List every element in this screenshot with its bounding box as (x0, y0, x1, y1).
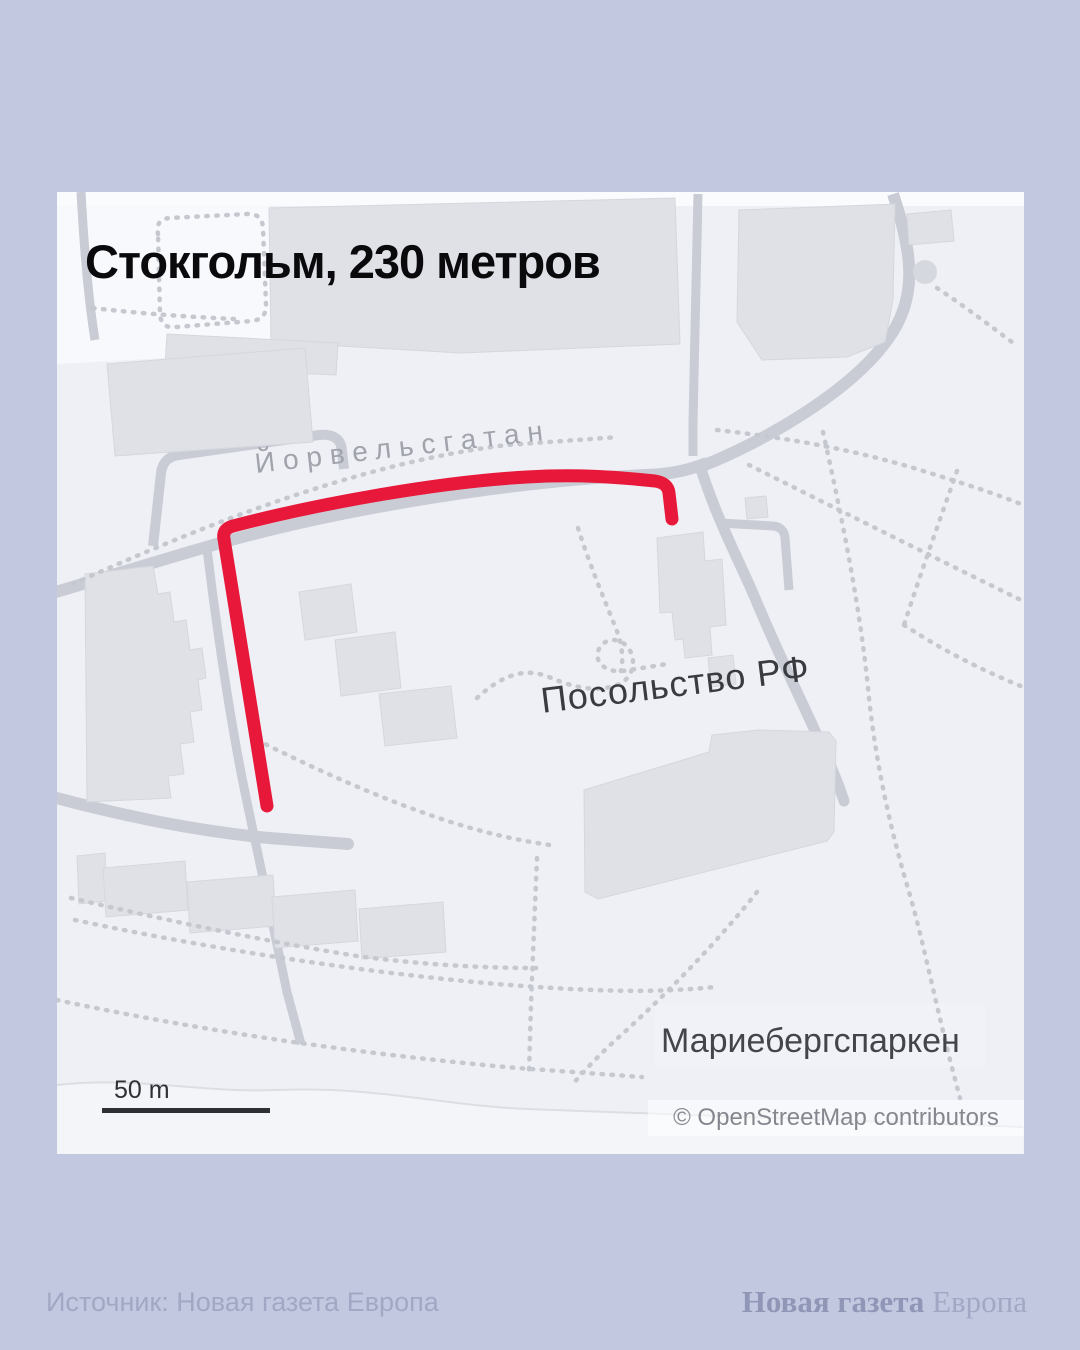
building (335, 632, 401, 696)
logo-bold-part: Новая газета (742, 1284, 925, 1319)
map-title: Стокгольм, 230 метров (85, 234, 600, 289)
source-credit: Источник: Новая газета Европа (46, 1287, 439, 1318)
infographic-page: Стокгольм, 230 метров Йорвельсгатан Посо… (0, 0, 1080, 1350)
map-circle-feature (913, 260, 937, 284)
building (103, 861, 188, 917)
building (359, 902, 446, 959)
park-label: Мариебергспаркен (661, 1022, 960, 1061)
publisher-logo: Новая газета Европа (742, 1284, 1027, 1320)
building (745, 496, 768, 519)
logo-light-part: Европа (932, 1284, 1027, 1319)
building (379, 686, 457, 746)
building (187, 875, 276, 933)
building (107, 348, 313, 456)
building (272, 890, 358, 948)
map-canvas (57, 192, 1024, 1154)
scale-bar (102, 1108, 270, 1113)
road-vertical-top (693, 194, 698, 456)
building (77, 853, 107, 904)
osm-attribution: © OpenStreetMap contributors (648, 1100, 1024, 1136)
scale-label: 50 m (114, 1076, 170, 1105)
building (737, 204, 895, 360)
building (299, 584, 357, 640)
map-card: Стокгольм, 230 метров Йорвельсгатан Посо… (57, 192, 1024, 1154)
building (907, 210, 954, 245)
